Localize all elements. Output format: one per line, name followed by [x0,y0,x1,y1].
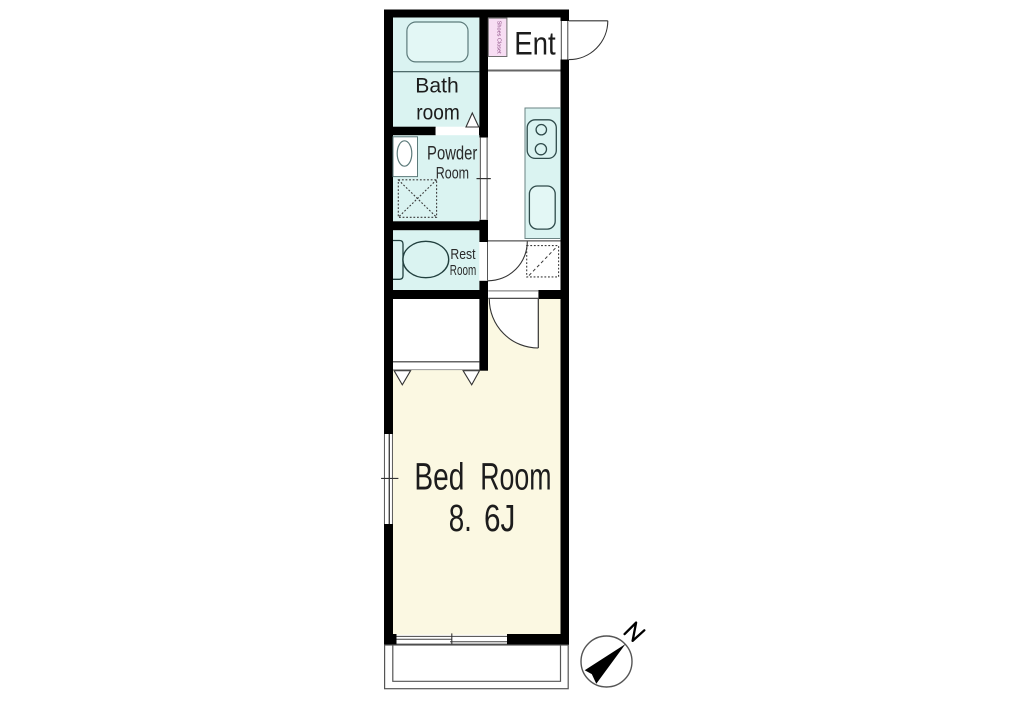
svg-text:6J: 6J [484,498,515,540]
svg-text:Room: Room [450,263,476,279]
svg-text:Room: Room [436,163,469,182]
svg-text:Ent: Ent [514,26,556,62]
svg-text:8.: 8. [449,498,472,540]
svg-text:Bed: Bed [414,456,464,498]
svg-text:Bath: Bath [415,73,459,97]
svg-text:room: room [416,100,460,124]
svg-text:Rest: Rest [450,247,475,263]
svg-text:Shoes Closet: Shoes Closet [496,21,502,54]
svg-text:Powder: Powder [427,143,478,165]
svg-text:Room: Room [480,456,551,498]
